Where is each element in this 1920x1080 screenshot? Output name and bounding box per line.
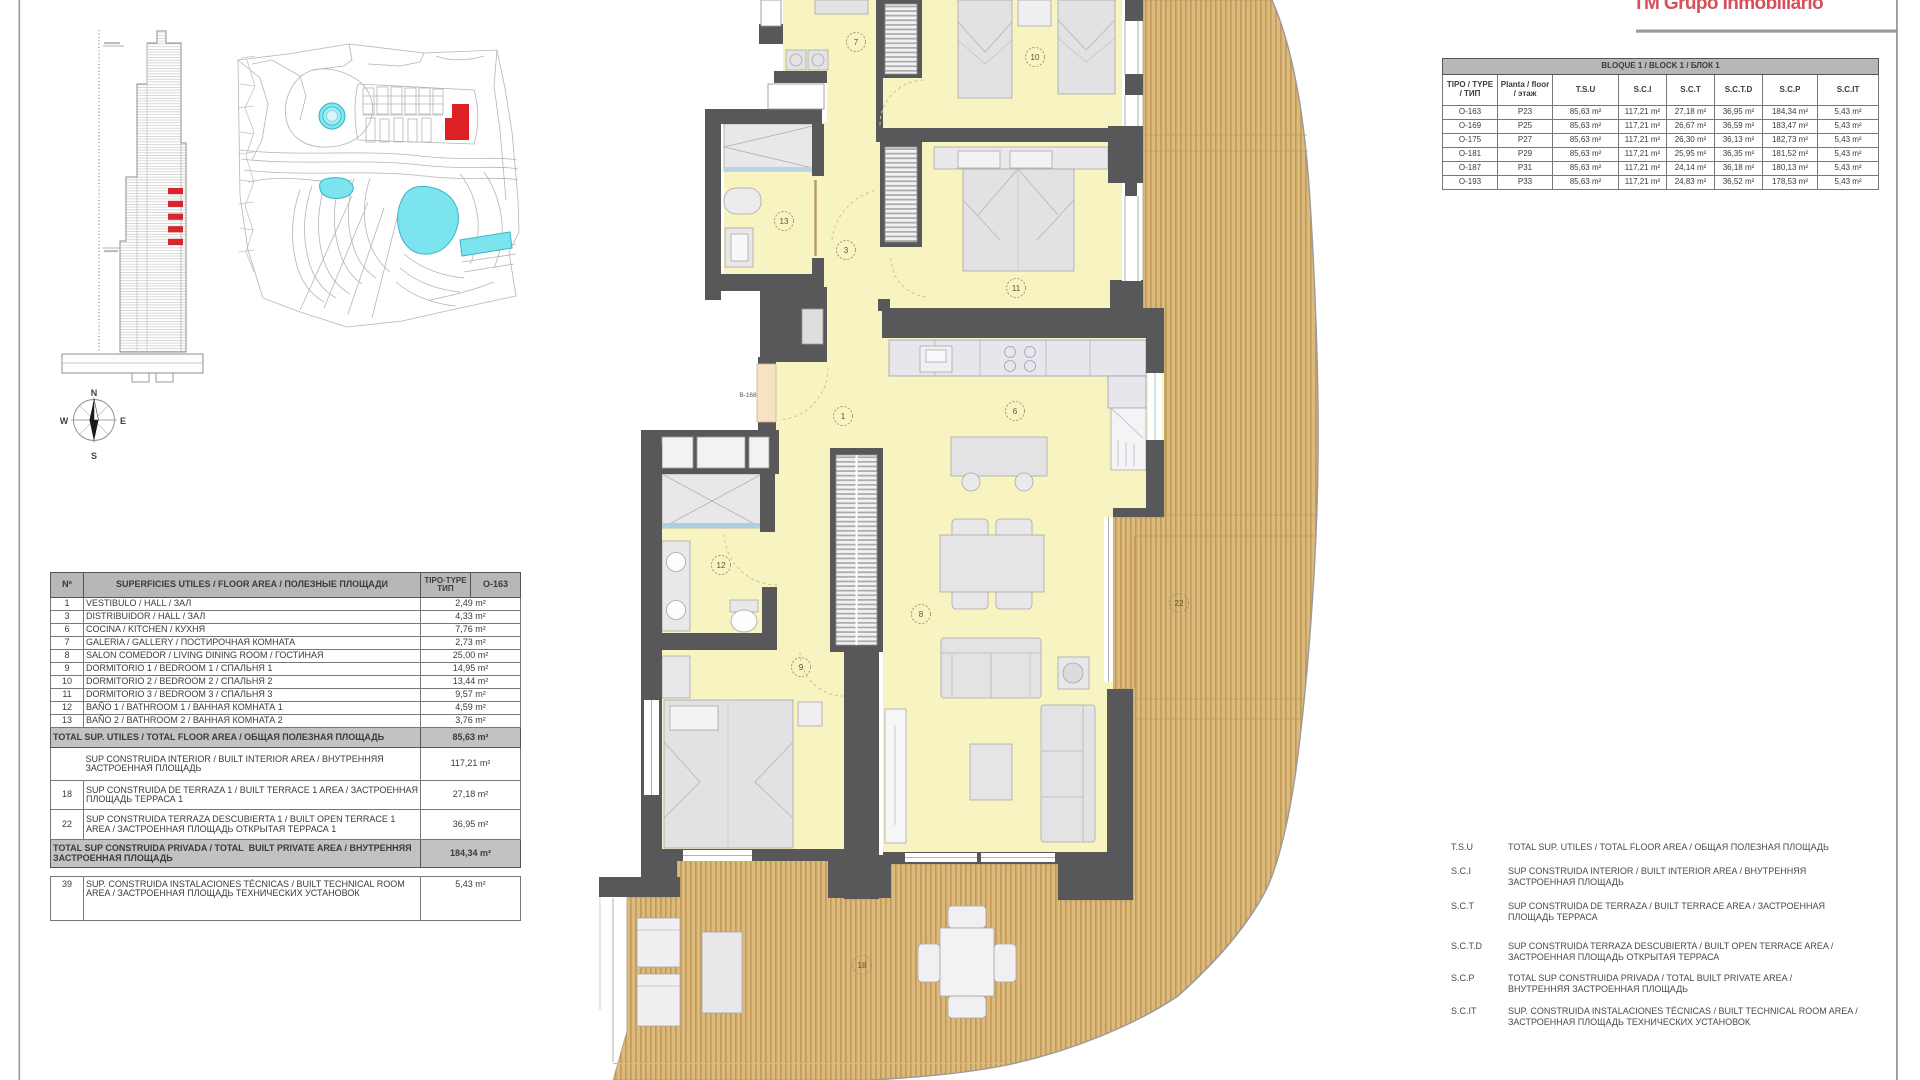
svg-text:1: 1 [841, 412, 846, 421]
svg-text:N: N [91, 388, 98, 398]
svg-text:W: W [60, 416, 69, 426]
svg-text:13: 13 [780, 217, 789, 226]
svg-text:9: 9 [799, 663, 804, 672]
svg-text:11: 11 [1012, 284, 1021, 293]
svg-text:22: 22 [1175, 599, 1184, 608]
svg-text:6: 6 [1013, 407, 1018, 416]
svg-text:12: 12 [717, 561, 726, 570]
svg-text:E: E [120, 416, 126, 426]
svg-text:S: S [91, 451, 97, 461]
svg-text:10: 10 [1031, 53, 1040, 62]
svg-text:3: 3 [844, 246, 849, 255]
svg-text:B-168: B-168 [739, 392, 757, 399]
svg-text:18: 18 [858, 961, 867, 970]
svg-text:8: 8 [919, 610, 924, 619]
svg-text:7: 7 [854, 38, 859, 47]
